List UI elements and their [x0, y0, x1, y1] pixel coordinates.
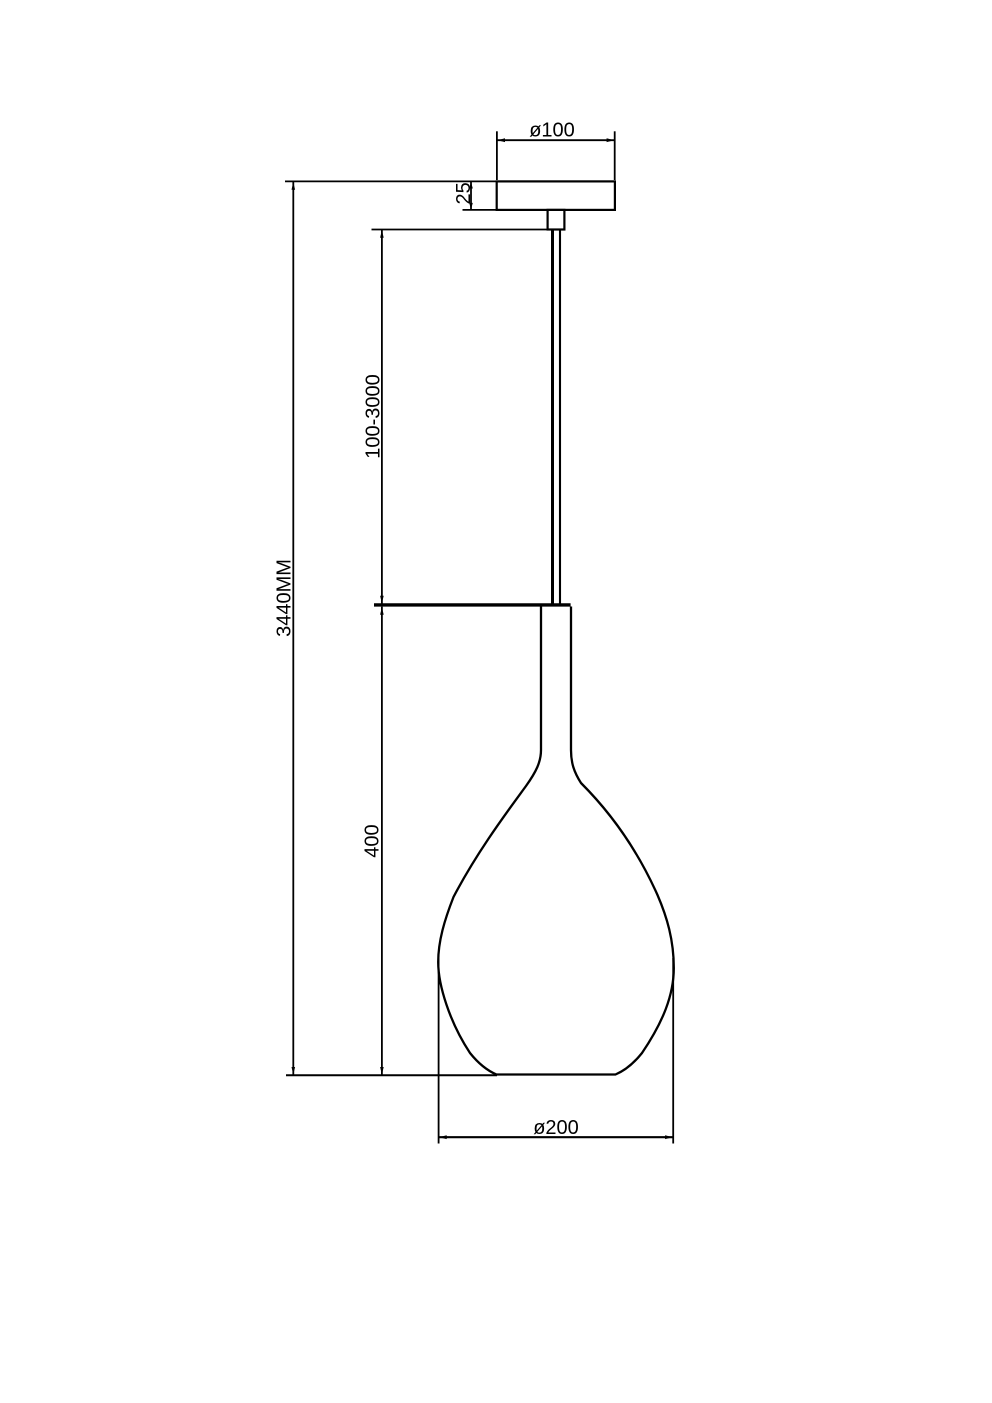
- svg-text:ø100: ø100: [529, 119, 575, 141]
- svg-text:100-3000: 100-3000: [363, 374, 385, 459]
- svg-text:ø200: ø200: [533, 1117, 579, 1139]
- svg-text:3440MM: 3440MM: [274, 559, 296, 637]
- svg-text:400: 400: [362, 824, 384, 857]
- svg-text:25: 25: [453, 182, 475, 204]
